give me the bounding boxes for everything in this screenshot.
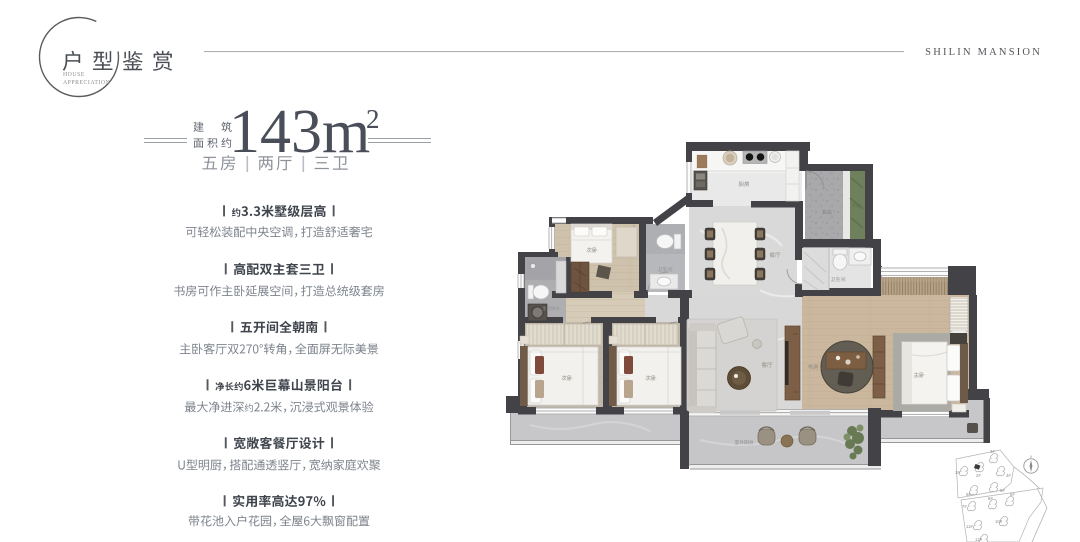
svg-text:10#: 10# xyxy=(995,519,1003,524)
svg-text:3#: 3# xyxy=(990,449,995,454)
svg-text:143m: 143m xyxy=(229,98,370,166)
svg-text:1#: 1# xyxy=(955,470,960,475)
svg-text:6#: 6# xyxy=(966,492,971,497)
svg-text:APPRECIATION: APPRECIATION xyxy=(63,80,111,86)
svg-text:2: 2 xyxy=(366,104,380,134)
svg-text:9#: 9# xyxy=(1010,492,1015,497)
svg-text:SHILIN MANSION: SHILIN MANSION xyxy=(925,47,1042,58)
svg-text:2#: 2# xyxy=(976,473,981,478)
svg-text:11#: 11# xyxy=(966,524,973,529)
svg-text:4#: 4# xyxy=(1006,473,1011,478)
svg-text:8#: 8# xyxy=(988,496,993,501)
svg-text:5#: 5# xyxy=(1000,488,1005,493)
svg-text:12#: 12# xyxy=(975,537,983,542)
svg-text:HOUSE: HOUSE xyxy=(63,72,85,78)
svg-text:7#: 7# xyxy=(962,504,967,509)
